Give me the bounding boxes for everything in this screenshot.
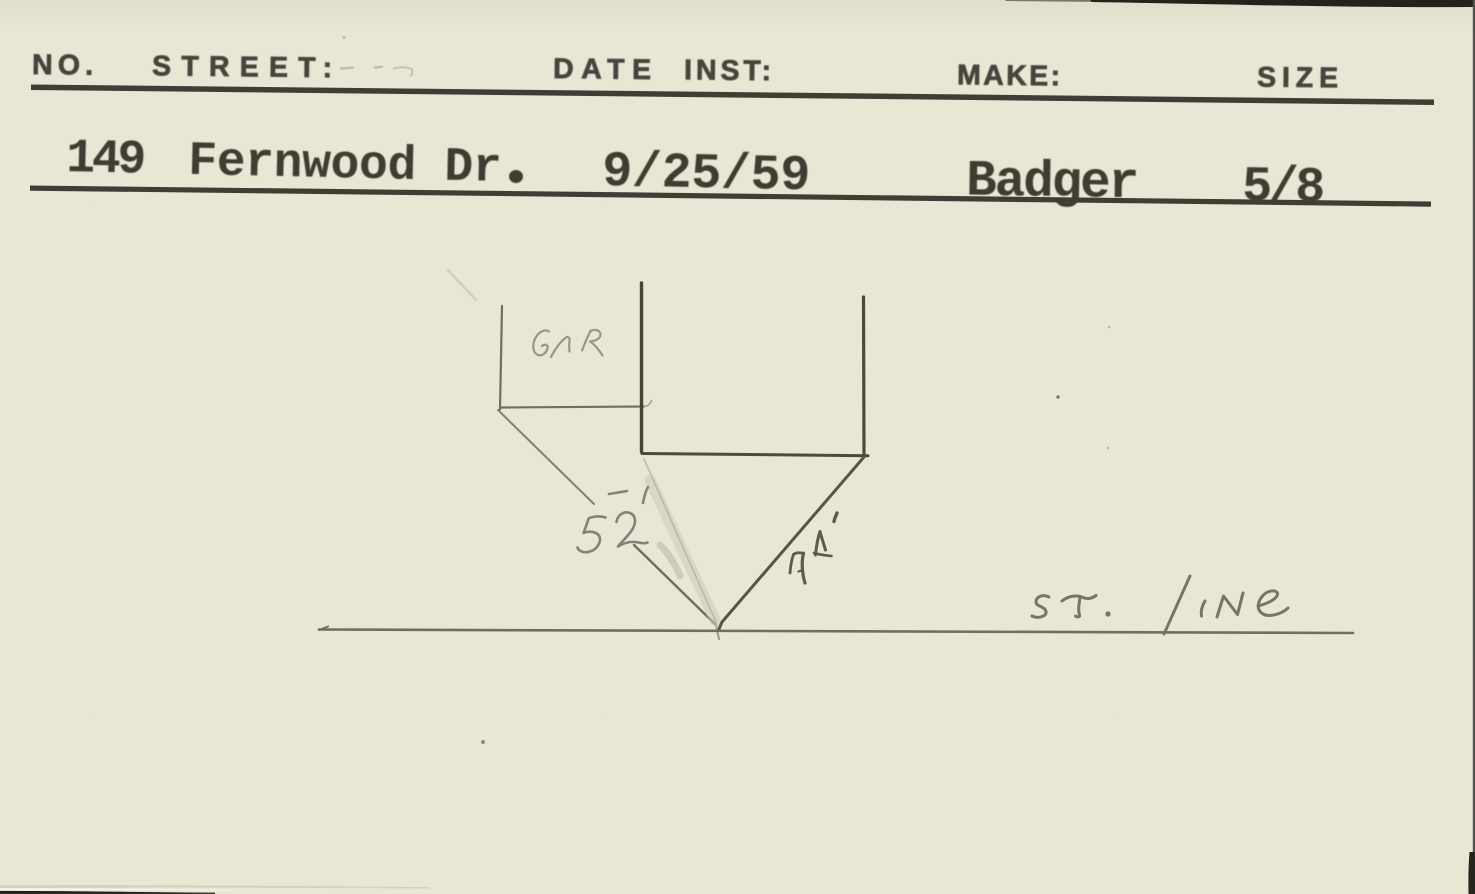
svg-text:9/25/59: 9/25/59 [602,144,811,205]
svg-text:149: 149 [66,132,147,188]
svg-text:Fernwood Dr.: Fernwood Dr. [188,135,531,197]
svg-text:5/8: 5/8 [1242,159,1326,217]
svg-text:Badger: Badger [966,154,1140,214]
svg-text:SIZE: SIZE [1257,62,1338,95]
svg-text:MAKE:: MAKE: [957,59,1060,92]
